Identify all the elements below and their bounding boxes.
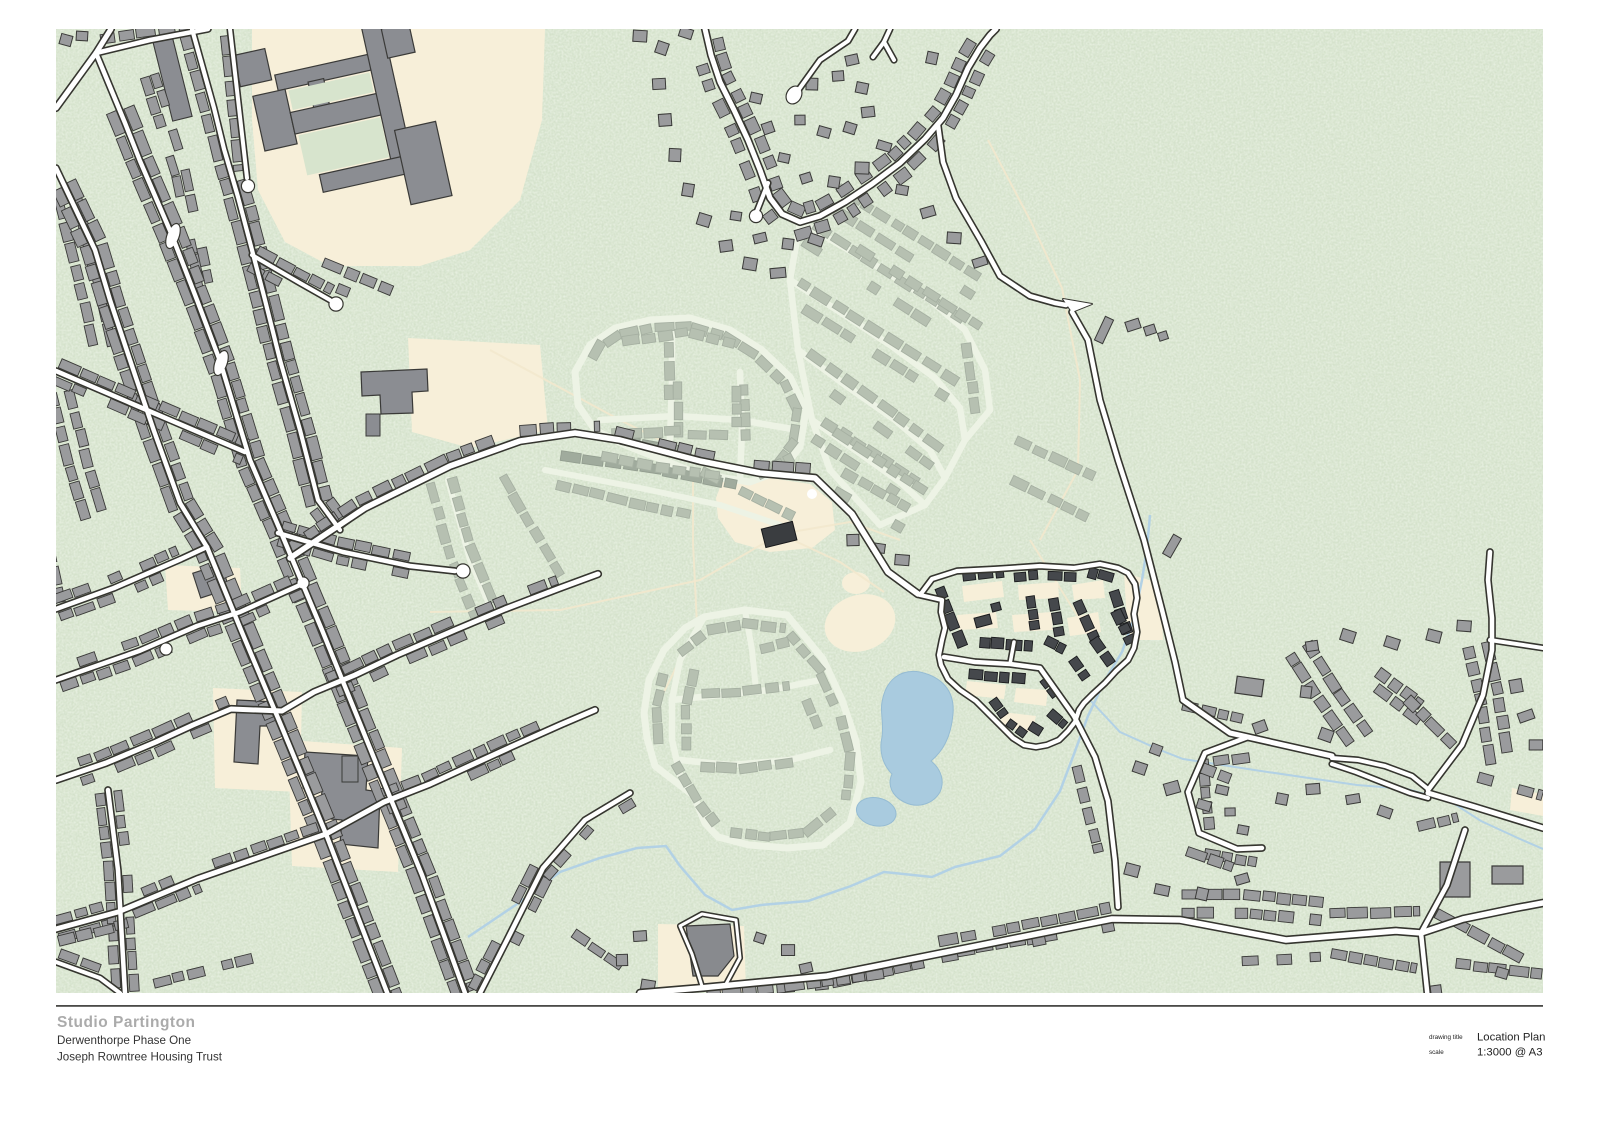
svg-text:Joseph Rowntree Housing Trust: Joseph Rowntree Housing Trust — [57, 1051, 223, 1064]
svg-text:drawing title: drawing title — [1429, 1034, 1463, 1041]
svg-text:Derwenthorpe Phase One: Derwenthorpe Phase One — [57, 1034, 191, 1047]
svg-text:scale: scale — [1429, 1049, 1444, 1056]
svg-text:1:3000 @ A3: 1:3000 @ A3 — [1477, 1047, 1543, 1059]
svg-text:Location Plan: Location Plan — [1477, 1032, 1545, 1044]
svg-text:Studio Partington: Studio Partington — [57, 1014, 196, 1031]
